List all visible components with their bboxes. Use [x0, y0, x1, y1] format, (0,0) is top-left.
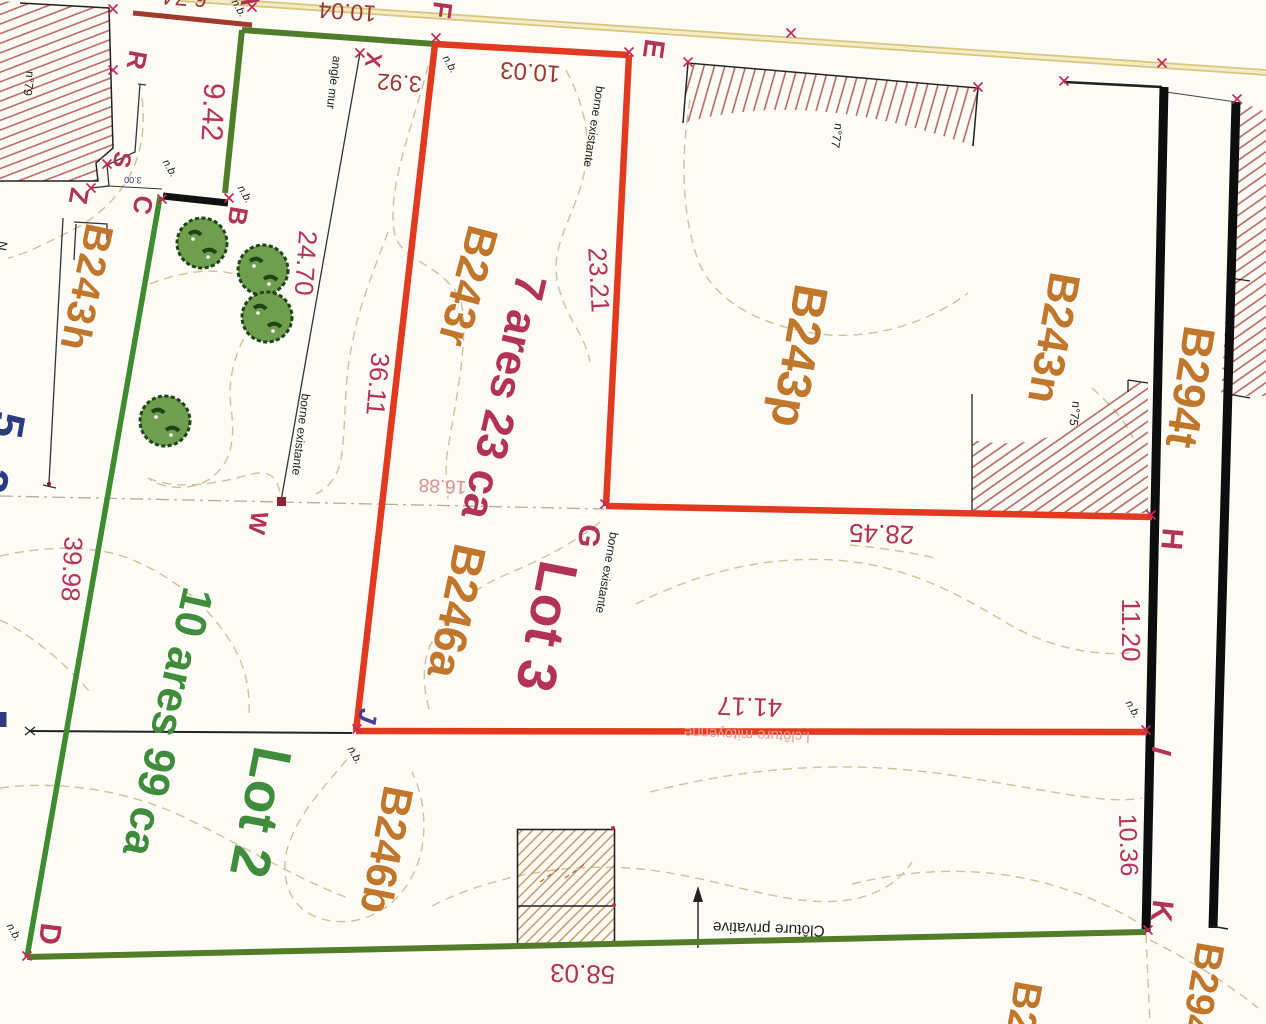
- svg-text:G: G: [571, 522, 607, 550]
- svg-text:24.70: 24.70: [289, 230, 323, 297]
- svg-text:6.74: 6.74: [161, 0, 208, 13]
- svg-text:3.00: 3.00: [124, 175, 142, 186]
- svg-text:B2: B2: [998, 978, 1050, 1024]
- svg-text:K: K: [1144, 898, 1179, 924]
- svg-text:28.45: 28.45: [849, 518, 915, 550]
- svg-text:39.98: 39.98: [55, 536, 88, 603]
- svg-text:10.03: 10.03: [499, 56, 561, 87]
- svg-text:58.03: 58.03: [550, 958, 616, 990]
- svg-text:3.92: 3.92: [376, 68, 422, 97]
- svg-text:11.20: 11.20: [1116, 598, 1146, 661]
- svg-text:N: N: [0, 240, 11, 252]
- svg-text:10.04: 10.04: [317, 0, 376, 27]
- svg-text:9.42: 9.42: [194, 82, 230, 142]
- svg-text:36.11: 36.11: [360, 351, 395, 417]
- svg-text:10.36: 10.36: [1113, 813, 1143, 877]
- svg-text:D: D: [32, 921, 67, 947]
- svg-text:41.17: 41.17: [717, 691, 783, 723]
- svg-text:23.21: 23.21: [582, 247, 615, 314]
- svg-text:H: H: [1154, 527, 1189, 551]
